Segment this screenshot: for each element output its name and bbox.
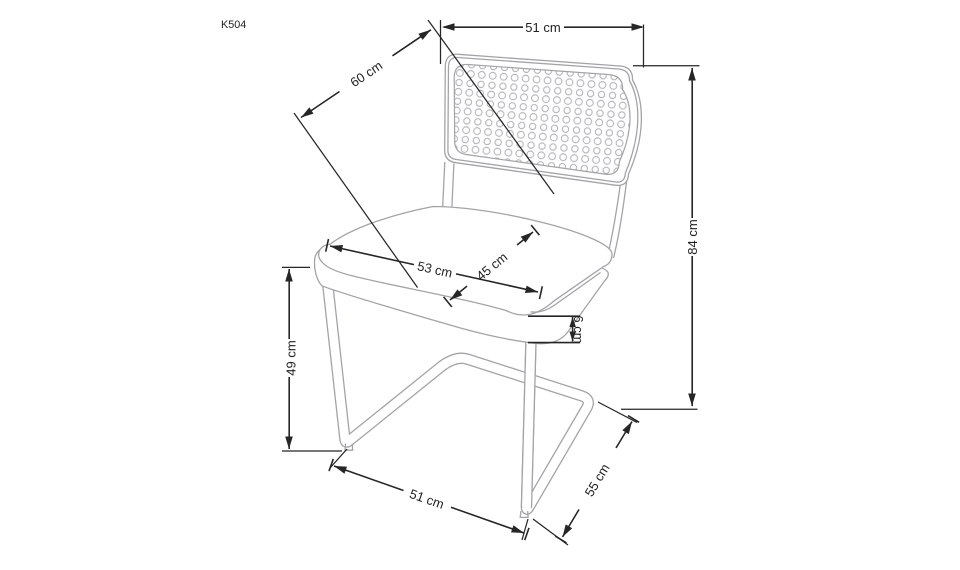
svg-text:K504: K504 bbox=[221, 19, 246, 31]
svg-text:51 cm: 51 cm bbox=[525, 20, 560, 35]
svg-text:84 cm: 84 cm bbox=[685, 219, 700, 254]
svg-text:6 cm: 6 cm bbox=[571, 315, 586, 343]
svg-text:49 cm: 49 cm bbox=[284, 340, 299, 375]
